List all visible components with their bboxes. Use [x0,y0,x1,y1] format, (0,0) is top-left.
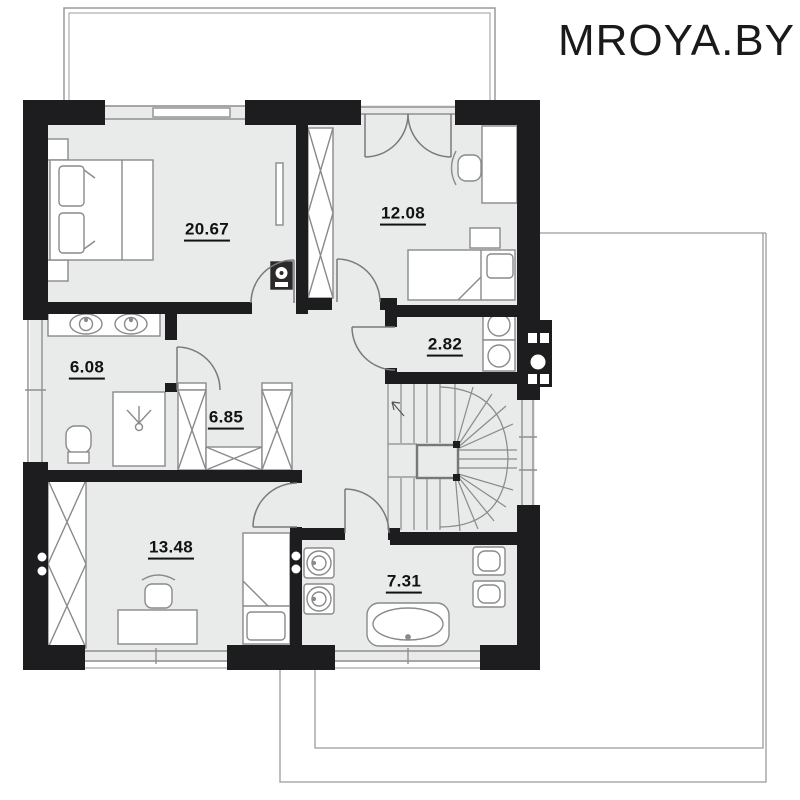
washbasin-icon [304,584,334,614]
shower-icon [113,392,165,466]
wall-unit-icon [271,262,292,289]
vanity-double-sink-icon [48,313,160,336]
dryer-icon [483,340,515,371]
double-bed-icon [47,139,153,281]
room-area-label-bedroom-lower: 13.48 [148,539,194,560]
wardrobe-icon [48,480,86,648]
chimney-block-icon [524,320,552,387]
room-area-label-bedroom-upper-right: 12.08 [380,205,426,226]
desk-icon [482,126,517,203]
bidet-icon [473,581,505,607]
brand-watermark: MROYA.BY [558,16,798,66]
room-area-label-bedroom-master: 20.67 [184,221,230,242]
washbasin-icon [304,548,334,578]
wardrobe-icon [308,128,333,298]
tv-panel-icon [276,163,283,225]
single-bed-icon [243,533,290,644]
toilet-icon [66,426,91,463]
floor-plan-page: MROYA.BY 20.67 12.08 2.82 6.08 6.85 13.4… [0,0,800,800]
toilet-icon [473,547,505,575]
room-area-label-hall-wardrobe: 6.85 [208,409,244,430]
room-area-label-bathroom-upper: 6.08 [69,359,105,380]
bathtub-icon [367,603,449,646]
room-area-label-bathroom-lower: 7.31 [386,573,422,594]
floor-plan-drawing [0,0,800,800]
room-area-label-utility: 2.82 [427,336,463,357]
balcony-outline-top [64,8,495,100]
